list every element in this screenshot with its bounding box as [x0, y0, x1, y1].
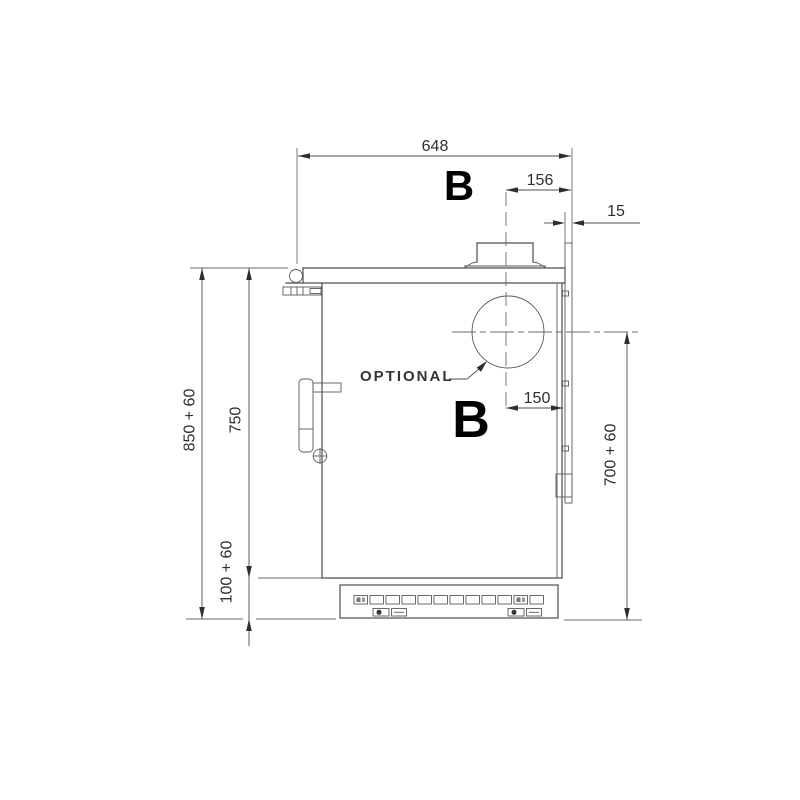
arrowhead [559, 153, 571, 159]
arrowhead [246, 566, 252, 578]
dimension-top-width: 648 [297, 138, 572, 264]
optional-callout: OPTIONAL [360, 361, 487, 385]
vent-row [354, 596, 544, 605]
stove-side-view [186, 192, 642, 620]
dimension-outlet-offset: 150 [506, 390, 563, 411]
optional-rear-outlet [452, 192, 642, 408]
technical-drawing-page: 648 156 15 150 850 + 60 750 [0, 0, 800, 800]
dim-label-15: 15 [607, 203, 625, 220]
flue-collar [464, 243, 546, 268]
rear-heat-shield [556, 243, 572, 503]
dim-label-750: 750 [228, 407, 245, 434]
top-plate [286, 268, 565, 283]
dim-label-150: 150 [524, 390, 551, 407]
stove-dimension-drawing: 648 156 15 150 850 + 60 750 [0, 0, 800, 800]
arrowhead [506, 187, 518, 193]
arrowhead [624, 608, 630, 620]
base-plinth [340, 585, 558, 618]
arrowhead [298, 153, 310, 159]
dim-label-648: 648 [422, 138, 449, 155]
arrowhead [246, 619, 252, 631]
arrowhead [572, 220, 584, 226]
arrowhead [246, 268, 252, 280]
dim-label-100-60: 100 + 60 [219, 541, 236, 604]
arrowhead [553, 220, 565, 226]
section-marker-b-top: B [444, 162, 474, 209]
floor-line [186, 619, 642, 620]
dimension-flue-offset: 156 [506, 172, 571, 193]
arrowhead [559, 187, 571, 193]
door-handle [299, 379, 341, 464]
dim-label-156: 156 [527, 172, 554, 189]
section-marker-b-front: B [452, 391, 490, 449]
stove-body [322, 283, 562, 578]
base-fittings [373, 609, 542, 617]
dimension-outlet-height: 700 + 60 [603, 332, 630, 620]
dim-label-850-60: 850 + 60 [182, 389, 199, 452]
optional-label: OPTIONAL [360, 368, 454, 385]
arrowhead [199, 268, 205, 280]
dim-label-700-60: 700 + 60 [603, 424, 620, 487]
arrowhead [199, 607, 205, 619]
dimension-front-height: 750 [228, 268, 323, 646]
dimension-rear-gap: 15 [544, 203, 640, 246]
arrowhead [506, 405, 518, 411]
arrowhead [624, 332, 630, 344]
dimension-base-height: 100 + 60 [219, 541, 252, 631]
